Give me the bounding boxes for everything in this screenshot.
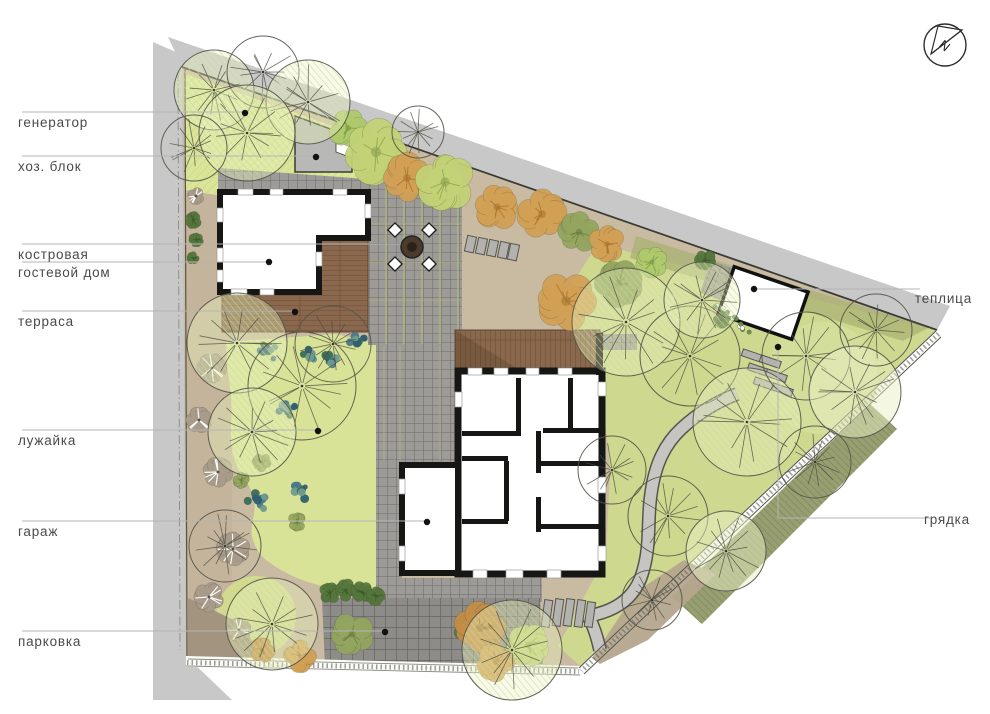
label-terrace: терраса [18, 315, 74, 329]
north-arrow: N [924, 24, 966, 66]
label-garden-bed: грядка [924, 513, 970, 527]
label-guest-house: гостевой дом [18, 266, 111, 280]
label-greenhouse: теплица [915, 292, 972, 306]
site-plan-page: N генератор хоз. блок костровая гостевой… [0, 0, 990, 714]
label-garage: гараж [18, 525, 58, 539]
label-generator: генератор [18, 116, 88, 130]
site-plan-drawing: N [0, 0, 990, 714]
label-parking: парковка [18, 635, 81, 649]
label-fire-pit: костровая [18, 248, 89, 262]
label-utility-block: хоз. блок [18, 160, 81, 174]
label-lawn: лужайка [18, 434, 76, 448]
